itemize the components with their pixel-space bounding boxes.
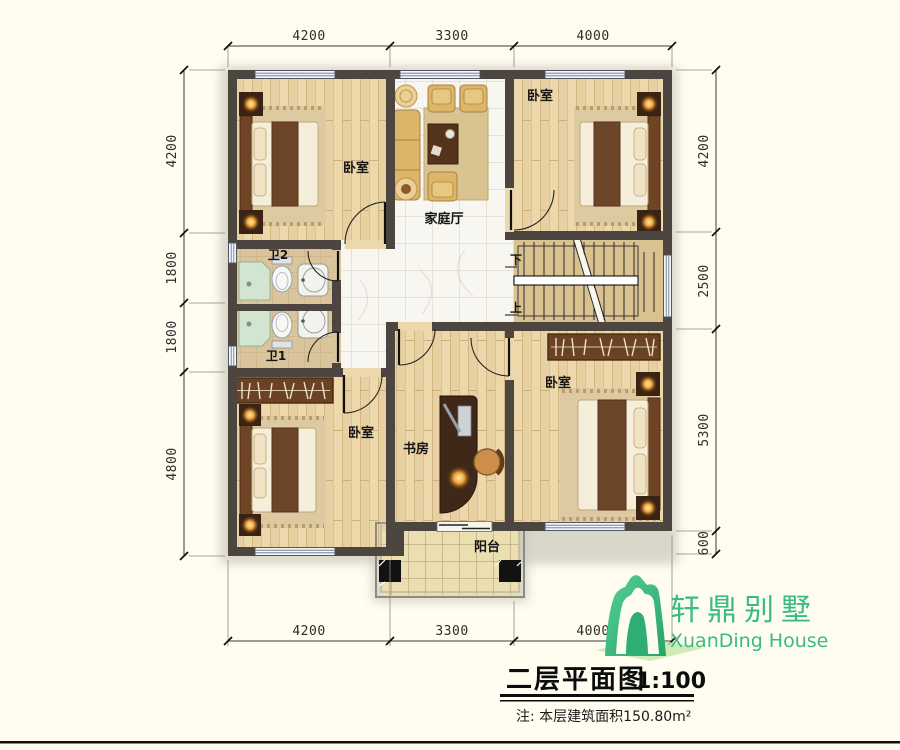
drawing-scale: 1:100 (636, 669, 706, 694)
dim-bottom-1: 4200 (292, 624, 325, 639)
family-hall-furniture (393, 85, 488, 201)
shower (239, 308, 270, 346)
lamp-glow (639, 499, 657, 517)
window (545, 523, 625, 531)
toilet (272, 312, 292, 338)
stair-handrail (514, 276, 638, 285)
lamp-glow (639, 375, 657, 393)
wardrobe-bottom-left (233, 378, 333, 403)
bed-bottom-right (560, 372, 660, 522)
area-note: 注: 本层建筑面积150.80m² (516, 709, 691, 725)
dim-left-2: 1800 (165, 251, 180, 284)
window (255, 71, 335, 79)
bed-bottom-left (239, 404, 326, 536)
bed-top-right (574, 92, 661, 234)
window (255, 548, 335, 556)
dim-right-1: 4200 (697, 134, 712, 167)
lamp-glow (242, 213, 260, 231)
dim-top-1: 4200 (292, 29, 325, 44)
bed-top-left (239, 92, 326, 234)
desk-lamp-glow (447, 466, 471, 490)
stair-up-label: 上 (510, 300, 522, 315)
title-underline-thin (500, 700, 694, 702)
coffee-table (428, 124, 458, 164)
label-bedroom-bottom-left: 卧室 (348, 425, 374, 441)
lamp-glow (242, 95, 260, 113)
title-underline-thick (500, 694, 694, 697)
balcony-column-right (499, 560, 521, 582)
window (664, 255, 672, 317)
label-family-hall: 家庭厅 (424, 211, 463, 227)
label-bathroom-1: 卫1 (266, 349, 286, 363)
shower (239, 262, 270, 300)
bottom-rule (0, 741, 900, 744)
label-bathroom-2: 卫2 (268, 248, 288, 262)
sliding-door-balcony (437, 522, 492, 532)
label-study: 书房 (403, 441, 429, 457)
window (400, 71, 480, 79)
dim-bottom-3: 4000 (576, 624, 609, 639)
desk-chair (474, 449, 500, 475)
dim-top-2: 3300 (435, 29, 468, 44)
label-bedroom-bottom-right: 卧室 (545, 375, 571, 391)
armchair (460, 85, 487, 112)
label-bedroom-top-left: 卧室 (343, 160, 369, 176)
label-balcony: 阳台 (474, 539, 500, 555)
lamp-glow (640, 213, 658, 231)
dim-right-3: 5300 (697, 413, 712, 446)
dim-right-2: 2500 (697, 264, 712, 297)
dim-right-4: 600 (697, 531, 712, 556)
window (229, 346, 237, 366)
dim-left-4: 4800 (165, 447, 180, 480)
drawing-title: 二层平面图 (506, 665, 646, 695)
toilet-tank (272, 341, 292, 348)
armchair (428, 172, 457, 201)
wardrobe-bottom-right (548, 334, 660, 360)
toilet (272, 266, 292, 292)
title-block: 二层平面图 1:100 注: 本层建筑面积150.80m² (500, 665, 706, 725)
armchair (428, 85, 455, 112)
floor-plan-canvas: 下 上 (0, 0, 900, 750)
logo-name-cn: 轩鼎别墅 (670, 593, 818, 628)
dim-top-3: 4000 (576, 29, 609, 44)
window (545, 71, 625, 79)
logo-name-en: XuanDing House (670, 630, 828, 652)
lamp-glow (241, 516, 259, 534)
lamp-glow (640, 95, 658, 113)
dim-left-3: 1800 (165, 320, 180, 353)
side-table (395, 85, 417, 107)
lamp-glow (241, 406, 259, 424)
window (229, 243, 237, 263)
label-bedroom-top-right: 卧室 (527, 88, 553, 104)
dim-left-1: 4200 (165, 134, 180, 167)
dim-bottom-2: 3300 (435, 624, 468, 639)
stair-down-label: 下 (510, 253, 522, 267)
